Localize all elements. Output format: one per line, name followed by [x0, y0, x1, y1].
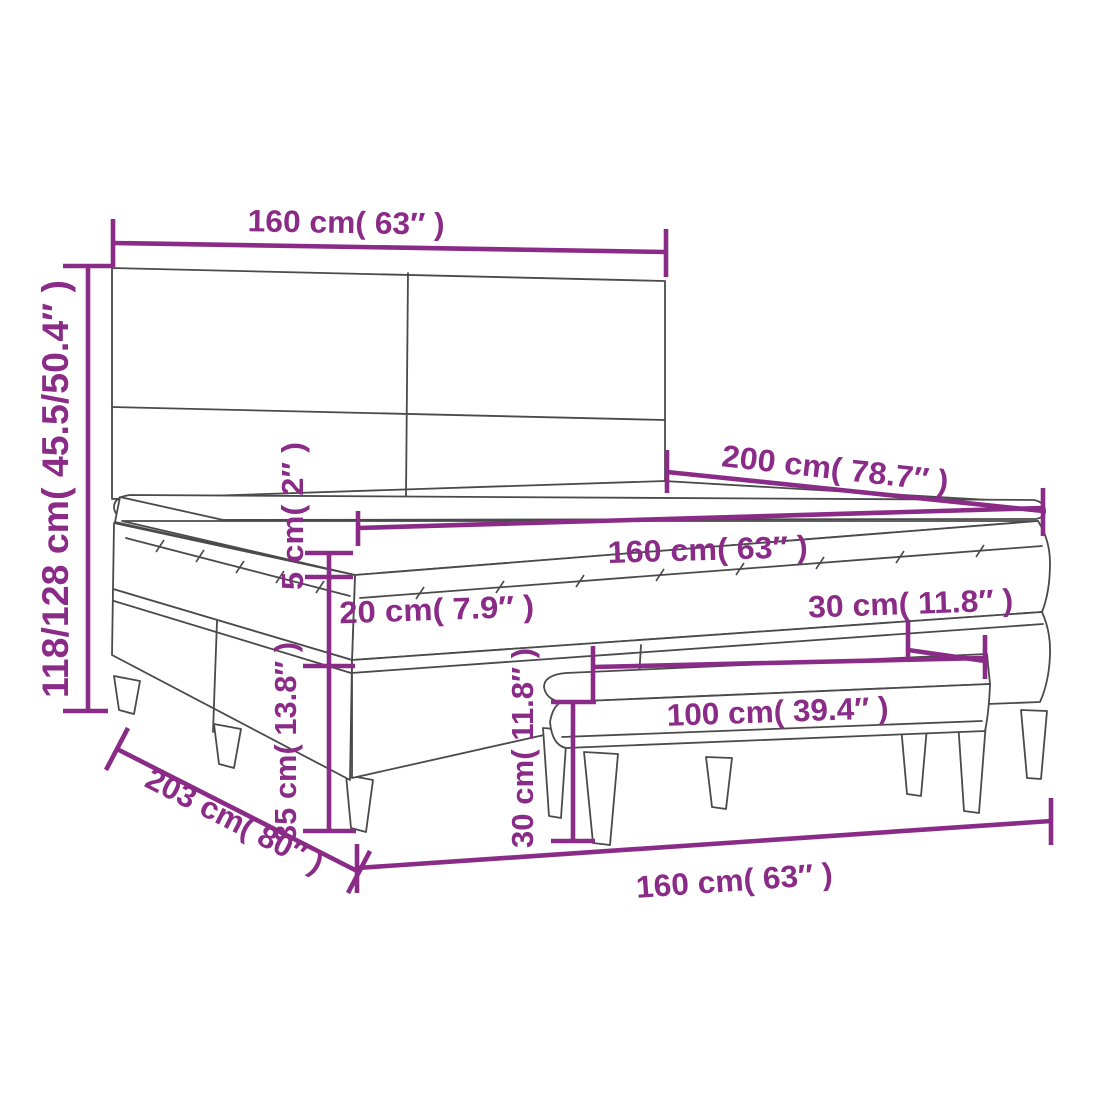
bed-diagram-svg: 160 cm( 63″ ) 118/128 cm( 45.5/50.4″ ) 2…	[0, 0, 1100, 1100]
headboard	[112, 268, 665, 499]
label-bench-height: 30 cm( 11.8″ )	[505, 648, 540, 848]
label-topper-height: 5 cm( 2″ )	[275, 442, 310, 590]
label-headboard-width: 160 cm( 63″ )	[247, 203, 445, 241]
dimension-diagram: 160 cm( 63″ ) 118/128 cm( 45.5/50.4″ ) 2…	[0, 0, 1100, 1100]
label-bench-depth: 30 cm( 11.8″ )	[808, 582, 1014, 624]
label-headboard-height: 118/128 cm( 45.5/50.4″ )	[35, 280, 76, 698]
label-mattress-width: 160 cm( 63″ )	[607, 529, 808, 570]
label-base-height: 35 cm( 13.8″ )	[268, 642, 303, 842]
label-mattress-height: 20 cm( 7.9″ )	[339, 589, 535, 631]
